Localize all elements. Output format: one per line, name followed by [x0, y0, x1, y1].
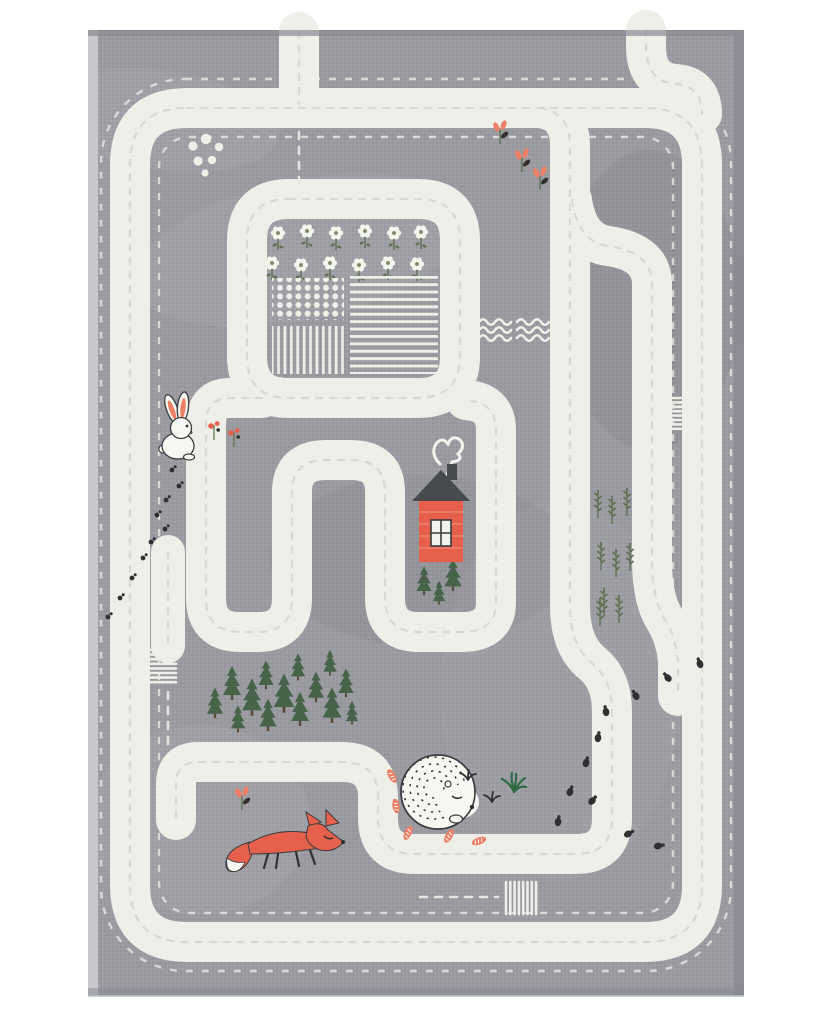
hedgehog-paw [450, 815, 463, 823]
crosswalk-top [289, 110, 313, 126]
house-window [431, 520, 451, 546]
hedgehog-nose [470, 805, 474, 809]
rug-edge-right [734, 30, 744, 996]
dot-crop-field [272, 278, 344, 320]
hedgehog-ear [445, 781, 451, 787]
rabbit-eye [186, 425, 189, 428]
stripe-field-horizontal [350, 276, 438, 374]
rug-edge-top [88, 30, 744, 36]
rug-edge-bottom [88, 988, 744, 996]
rug-illustration [0, 0, 827, 1024]
fox-nose [341, 840, 345, 844]
stripe-field-vertical [272, 326, 344, 374]
rug-fringe-left [88, 30, 98, 996]
rug-photo [0, 0, 827, 1024]
house-chimney [447, 464, 457, 480]
hedgehog-face [437, 785, 479, 819]
